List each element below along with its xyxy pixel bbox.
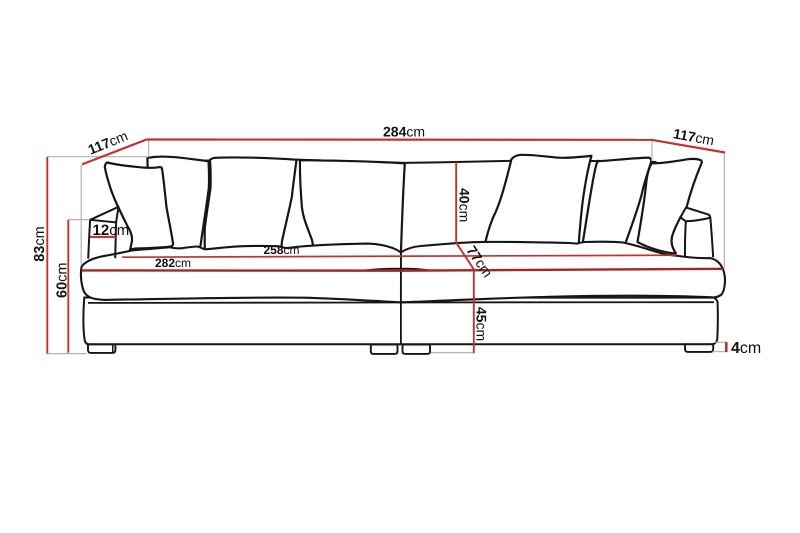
svg-text:12cm: 12cm	[93, 222, 130, 239]
svg-text:284cm: 284cm	[383, 123, 425, 139]
svg-text:258cm: 258cm	[264, 243, 300, 257]
svg-text:4cm: 4cm	[731, 340, 761, 357]
svg-text:60cm: 60cm	[54, 263, 70, 298]
svg-text:83cm: 83cm	[32, 226, 48, 261]
svg-text:40cm: 40cm	[457, 188, 473, 222]
svg-text:45cm: 45cm	[474, 307, 490, 341]
svg-text:282cm: 282cm	[155, 256, 191, 270]
